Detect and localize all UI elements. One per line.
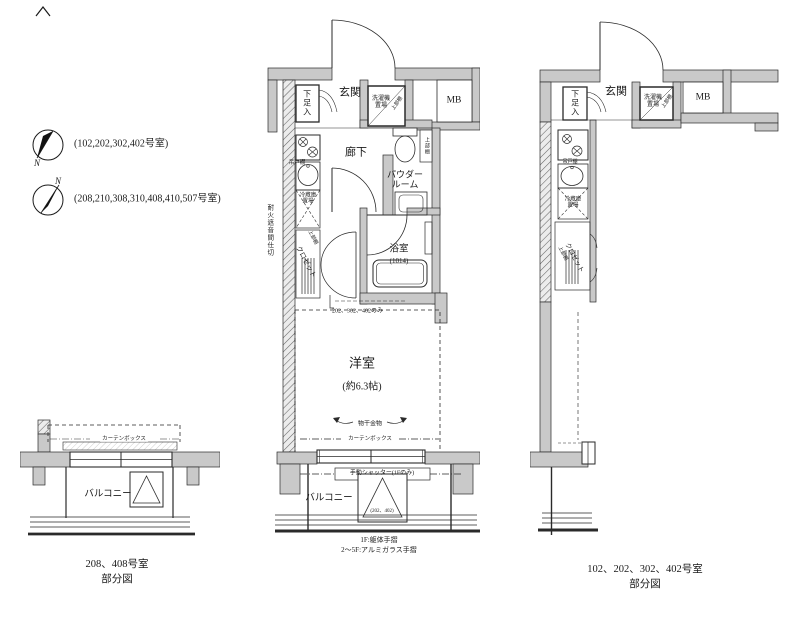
handrail-1f-label: 1F:躯体手摺	[360, 536, 397, 544]
washer-space-label-line1: 洗濯機	[372, 96, 390, 103]
right-partial-plan: 玄関 下足入 洗濯機 置場 上部棚 MB 吊戸棚 冷蔵庫 置場 クロゼット 上部…	[530, 12, 780, 602]
compass-1-rooms-label: (102,202,302,402号室)	[74, 138, 168, 150]
washer-space-label-line2: 置場	[372, 103, 390, 110]
curtain-box-label: カーテンボックス	[100, 436, 148, 442]
hallway-label: 廊下	[345, 147, 367, 160]
powder-room-label-line1: パウダー	[387, 170, 423, 180]
main-floor-plan: 玄関 下足入 洗濯機 置場 上部棚 MB 廊下 上部棚 パウダー ルーム 吊戸棚…	[255, 12, 480, 568]
hanging-cabinet-label: 吊戸棚	[562, 160, 577, 166]
left-caption-line1: 208、408号室	[86, 559, 149, 571]
powder-room-label-line2: ルーム	[387, 180, 423, 190]
meter-box-label: MB	[696, 93, 711, 104]
stove	[296, 135, 320, 160]
left-caption-line2: 部分図	[101, 574, 133, 586]
balcony-label: バルコニー	[305, 494, 352, 505]
kitchen-sink	[296, 162, 320, 190]
entrance-label: 玄関	[339, 87, 361, 100]
shoe-cabinet-label: 下足入	[570, 90, 579, 117]
washer-space-label-line1: 洗濯機	[644, 95, 662, 102]
kitchen-sink	[558, 164, 588, 188]
washer-space-label: 洗濯機 置場	[644, 95, 662, 109]
compass-1	[33, 130, 63, 160]
entrance-door-arc	[332, 20, 395, 68]
compass-2	[33, 185, 63, 215]
fridge-space-label-line2: 置場	[300, 199, 317, 205]
entrance-label: 玄関	[605, 86, 627, 99]
compass-2-north-label: N	[55, 176, 61, 186]
washer-space-label: 洗濯機 置場	[372, 96, 390, 110]
left-partial-plan: カーテンボックス バルコニー 208、408号室 部分図	[20, 415, 220, 624]
shutter-hatch-box	[63, 442, 177, 450]
fridge-space-label: 冷蔵庫 置場	[565, 197, 582, 210]
fire-sound-partition-wall	[283, 80, 295, 452]
balcony-window	[317, 450, 425, 463]
western-room-label: 洋室	[349, 357, 375, 372]
bath-shelf	[425, 222, 432, 254]
washer-space-label-line2: 置場	[644, 102, 662, 109]
shoe-cabinet-label: 下足入	[302, 90, 311, 117]
powder-room-label: パウダー ルーム	[387, 170, 423, 191]
balcony-floor-lines	[542, 513, 592, 523]
handrail-2-5f-label: 2〜5F:アルミガラス手摺	[341, 546, 417, 554]
western-room-size-label: (約6.3帖)	[342, 381, 381, 393]
compass-2-rooms-label: (208,210,308,310,408,410,507号室)	[74, 193, 221, 205]
entrance-door-arc	[600, 22, 663, 70]
compass-legend: N (102,202,302,402号室) N (208,210,308,310…	[20, 115, 250, 235]
hanging-cabinet-label: 吊戸棚	[289, 160, 306, 166]
hatch-rooms-label: (202、402)	[370, 509, 393, 515]
compass-1-north-label: N	[34, 158, 40, 168]
bath-label: 浴室	[389, 245, 408, 256]
right-caption-line2: 部分図	[629, 579, 661, 591]
toilet-upper-shelf-label: 上部棚	[423, 137, 429, 155]
toilet	[393, 128, 417, 162]
shutter-label: 手動シャッター(1Fのみ)	[350, 471, 414, 478]
balcony-window	[70, 452, 172, 467]
stove	[558, 130, 588, 160]
evacuation-hatch	[130, 472, 163, 507]
main-plan-walls	[268, 68, 480, 494]
meter-box-label: MB	[447, 96, 462, 107]
rooms-only-note: 202、302、402のみ	[332, 309, 383, 316]
fire-sound-partition-label: 耐火遮音間仕切	[265, 204, 272, 257]
left-partial-drawing	[20, 415, 220, 624]
fridge-space-label-line2: 置場	[565, 203, 582, 209]
curtain-box-label: カーテンボックス	[346, 436, 394, 442]
fridge-space-label: 冷蔵庫 置場	[300, 193, 317, 206]
right-caption-line1: 102、202、302、402号室	[587, 564, 703, 576]
hallway-door-arc	[332, 168, 376, 212]
floor-plan-sheet: N (102,202,302,402号室) N (208,210,308,310…	[0, 0, 800, 624]
balcony-label: バルコニー	[84, 490, 131, 501]
balcony-floor-lines	[30, 517, 190, 527]
bath-size-label: (1014)	[390, 257, 409, 265]
laundry-hardware-label: 物干金物	[358, 422, 382, 429]
corner-mark	[34, 4, 54, 18]
